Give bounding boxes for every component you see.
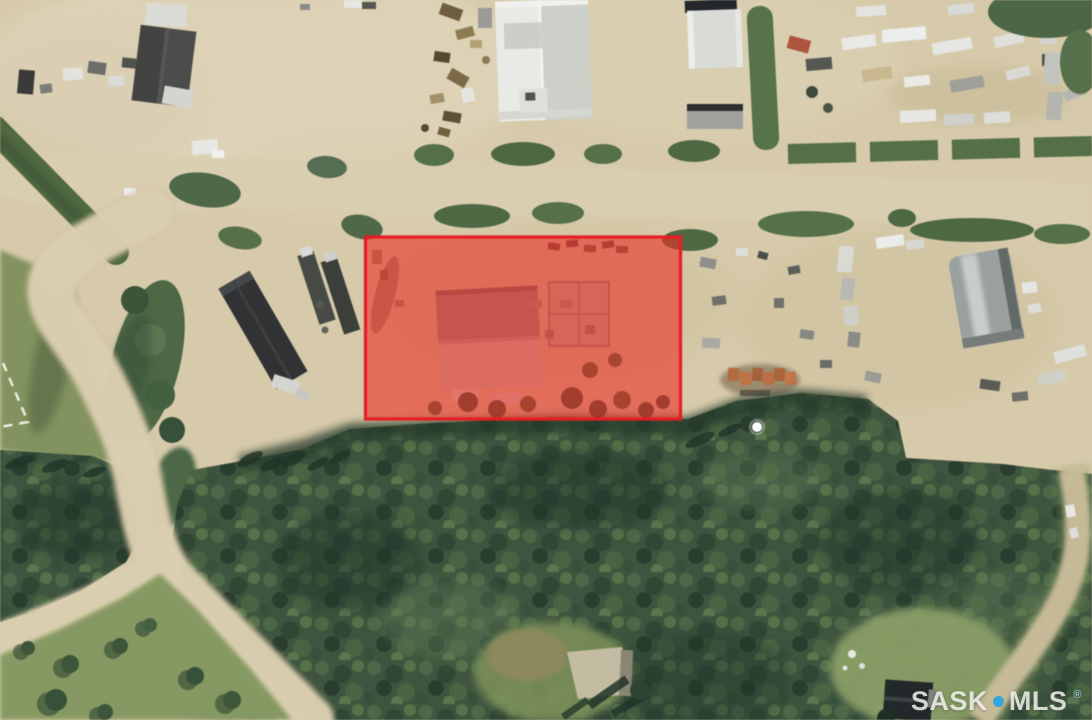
- blue-dot-icon: [993, 696, 1004, 707]
- watermark-suffix: MLS: [1009, 686, 1068, 717]
- white-warehouse: [495, 0, 592, 122]
- watermark-prefix: SASK: [911, 686, 988, 717]
- satellite-map-canvas: [0, 0, 1092, 720]
- gray-flat-structure: [687, 104, 743, 129]
- sask-mls-watermark: SASK MLS ®: [911, 686, 1082, 717]
- registered-trademark-symbol: ®: [1073, 689, 1082, 701]
- aerial-listing-photo: SASK MLS ®: [0, 0, 1092, 720]
- white-shop-building: [685, 0, 743, 69]
- map-marker-dot: [750, 420, 764, 434]
- property-highlight-rectangle: [366, 237, 681, 419]
